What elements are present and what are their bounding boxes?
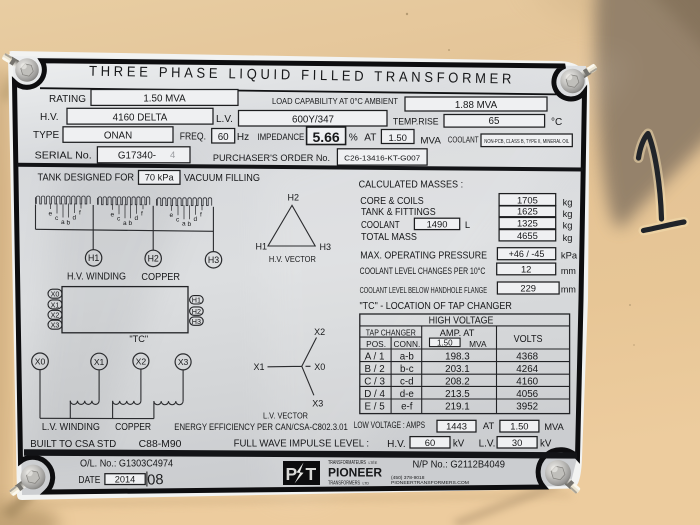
- svg-text:"TC": "TC": [129, 334, 148, 344]
- svg-text:AT: AT: [483, 420, 495, 431]
- svg-text:600Y/347: 600Y/347: [292, 115, 334, 126]
- svg-text:POS.: POS.: [366, 339, 386, 349]
- svg-text:D / 4: D / 4: [364, 389, 385, 400]
- svg-text:TYPE: TYPE: [33, 130, 59, 141]
- svg-text:4: 4: [170, 150, 175, 161]
- svg-text:H3: H3: [320, 242, 332, 252]
- svg-text:X1: X1: [253, 362, 264, 372]
- svg-text:COPPER: COPPER: [115, 422, 151, 433]
- svg-text:ONAN: ONAN: [104, 130, 132, 141]
- svg-text:d: d: [135, 215, 139, 222]
- svg-text:213.5: 213.5: [445, 389, 470, 400]
- svg-text:H2: H2: [148, 254, 159, 264]
- svg-text:DATE: DATE: [78, 475, 100, 486]
- svg-text:O/L. No.: G1303C4974: O/L. No.: G1303C4974: [80, 458, 174, 469]
- svg-text:BUILT TO CSA STD: BUILT TO CSA STD: [30, 439, 116, 450]
- svg-text:1.50: 1.50: [388, 133, 407, 144]
- svg-text:08: 08: [147, 472, 164, 489]
- svg-text:kPa: kPa: [561, 250, 578, 261]
- svg-text:a-b: a-b: [400, 351, 415, 362]
- svg-text:d: d: [73, 214, 77, 221]
- svg-text:H.V. WINDING: H.V. WINDING: [67, 272, 126, 283]
- svg-text:1.50: 1.50: [437, 339, 453, 348]
- svg-text:4056: 4056: [516, 389, 538, 400]
- svg-text:X3: X3: [51, 321, 60, 330]
- svg-text:C26-13416-KT-G007: C26-13416-KT-G007: [344, 153, 420, 162]
- svg-text:229: 229: [520, 282, 536, 293]
- svg-text:b: b: [188, 221, 192, 228]
- svg-text:198.3: 198.3: [445, 351, 470, 362]
- svg-text:a: a: [123, 220, 127, 227]
- svg-text:COOLANT LEVEL BELOW HANDHOLE F: COOLANT LEVEL BELOW HANDHOLE FLANGE: [360, 285, 488, 295]
- svg-text:3952: 3952: [516, 401, 538, 412]
- svg-text:N/P No.: G2112B4049: N/P No.: G2112B4049: [413, 460, 506, 471]
- svg-text:5.66: 5.66: [312, 129, 339, 145]
- svg-text:TEMP.RISE: TEMP.RISE: [393, 116, 439, 127]
- svg-text:a: a: [61, 219, 65, 226]
- svg-text:b: b: [129, 220, 133, 227]
- svg-text:CORE & COILS: CORE & COILS: [360, 196, 424, 207]
- svg-text:X2: X2: [314, 327, 325, 337]
- svg-text:COOLANT: COOLANT: [448, 135, 479, 145]
- svg-text:MVA: MVA: [544, 421, 564, 432]
- svg-text:12: 12: [521, 263, 531, 274]
- svg-text:COOLANT: COOLANT: [361, 220, 400, 231]
- svg-text:f: f: [200, 211, 202, 218]
- svg-text:a: a: [182, 221, 186, 228]
- svg-text:X3: X3: [178, 357, 189, 367]
- svg-text:mm: mm: [561, 266, 576, 276]
- svg-text:X1: X1: [94, 357, 105, 367]
- svg-text:ENERGY EFFICIENCY PER CAN/CSA-: ENERGY EFFICIENCY PER CAN/CSA-C802.3.01: [174, 422, 348, 432]
- svg-text:1.50: 1.50: [510, 420, 528, 431]
- svg-text:b: b: [67, 219, 71, 226]
- svg-text:d-e: d-e: [400, 389, 415, 400]
- svg-text:°C: °C: [551, 117, 562, 128]
- svg-text:TANK DESIGNED FOR: TANK DESIGNED FOR: [38, 172, 135, 183]
- svg-text:kg: kg: [563, 208, 573, 219]
- svg-text:kg: kg: [563, 220, 573, 231]
- svg-text:f: f: [79, 210, 81, 217]
- svg-text:%: %: [349, 133, 358, 144]
- svg-text:kg: kg: [563, 197, 573, 208]
- svg-text:kV: kV: [540, 438, 552, 449]
- svg-text:H2: H2: [288, 192, 300, 202]
- svg-text:P: P: [286, 464, 298, 484]
- svg-text:TOTAL MASS: TOTAL MASS: [361, 232, 417, 243]
- svg-text:PURCHASER'S ORDER No.: PURCHASER'S ORDER No.: [213, 153, 330, 164]
- svg-text:e-f: e-f: [401, 401, 413, 412]
- svg-text:X2: X2: [136, 356, 147, 366]
- svg-text:4160: 4160: [516, 376, 538, 387]
- svg-text:e: e: [111, 211, 115, 218]
- svg-text:1625: 1625: [517, 206, 538, 217]
- svg-text:FULL WAVE IMPULSE LEVEL :: FULL WAVE IMPULSE LEVEL :: [234, 439, 370, 450]
- svg-text:LOW VOLTAGE : AMPS: LOW VOLTAGE : AMPS: [354, 420, 425, 430]
- svg-text:4264: 4264: [516, 364, 538, 375]
- svg-text:(450) 378-9018: (450) 378-9018: [391, 475, 425, 481]
- svg-text:208.2: 208.2: [445, 376, 470, 387]
- svg-text:NON-PCB, CLASS B, TYPE II, MIN: NON-PCB, CLASS B, TYPE II, MINERAL OIL: [484, 139, 569, 145]
- svg-text:60: 60: [218, 132, 229, 143]
- svg-text:H.V.: H.V.: [40, 112, 59, 123]
- svg-text:mm: mm: [561, 285, 576, 295]
- svg-text:L.V. WINDING: L.V. WINDING: [42, 422, 100, 433]
- svg-text:L.V.: L.V.: [479, 438, 496, 449]
- svg-text:X0: X0: [35, 357, 46, 367]
- svg-text:d: d: [194, 216, 198, 223]
- svg-text:e: e: [49, 211, 53, 218]
- svg-text:203.1: 203.1: [445, 364, 470, 375]
- svg-text:LOAD CAPABILITY AT 0°C AMBIENT: LOAD CAPABILITY AT 0°C AMBIENT: [272, 97, 398, 106]
- svg-text:C / 3: C / 3: [364, 376, 385, 387]
- svg-text:X3: X3: [312, 398, 323, 408]
- svg-text:H1: H1: [192, 296, 201, 305]
- svg-text:b-c: b-c: [400, 364, 414, 375]
- svg-text:X2: X2: [51, 311, 60, 320]
- svg-text:MVA: MVA: [469, 339, 487, 349]
- svg-text:TRANSFORMERS: TRANSFORMERS: [328, 480, 360, 486]
- svg-text:1325: 1325: [517, 218, 538, 229]
- svg-text:kV: kV: [453, 438, 465, 449]
- svg-text:C88-M90: C88-M90: [139, 439, 182, 450]
- svg-text:L.V. VECTOR: L.V. VECTOR: [263, 410, 308, 420]
- svg-text:1490: 1490: [427, 219, 448, 230]
- svg-text:L.V.: L.V.: [216, 114, 233, 125]
- svg-text:COOLANT LEVEL CHANGES PER 10°C: COOLANT LEVEL CHANGES PER 10°C: [360, 266, 486, 276]
- svg-text:CONN.: CONN.: [394, 339, 421, 349]
- svg-text:RATING: RATING: [49, 94, 86, 105]
- svg-text:LTD: LTD: [363, 481, 370, 485]
- svg-text:X0: X0: [314, 362, 325, 372]
- svg-text:H1: H1: [255, 242, 267, 252]
- svg-text:1705: 1705: [517, 194, 538, 205]
- svg-text:COPPER: COPPER: [141, 272, 180, 283]
- svg-text:c-d: c-d: [400, 376, 414, 387]
- svg-text:B / 2: B / 2: [365, 364, 385, 375]
- svg-text:1.50 MVA: 1.50 MVA: [143, 94, 186, 105]
- svg-text:E / 5: E / 5: [365, 401, 386, 412]
- svg-text:L: L: [465, 219, 470, 230]
- svg-text:2014: 2014: [115, 474, 135, 484]
- svg-text:SERIAL No.: SERIAL No.: [35, 151, 92, 162]
- svg-text:"TC" - LOCATION OF TAP CHANGER: "TC" - LOCATION OF TAP CHANGER: [360, 301, 512, 312]
- svg-text:219.1: 219.1: [445, 401, 470, 412]
- svg-text:60: 60: [425, 437, 435, 448]
- svg-text:G17340-: G17340-: [118, 151, 156, 162]
- svg-text:f: f: [141, 211, 143, 218]
- svg-text:CALCULATED MASSES :: CALCULATED MASSES :: [359, 179, 464, 190]
- svg-text:IMPEDANCE: IMPEDANCE: [257, 132, 304, 142]
- svg-text:e: e: [170, 212, 174, 219]
- svg-text:4655: 4655: [517, 230, 538, 241]
- svg-text:X1: X1: [51, 300, 60, 309]
- svg-text:HIGH VOLTAGE: HIGH VOLTAGE: [429, 315, 494, 326]
- svg-text:4368: 4368: [516, 351, 538, 362]
- svg-text:H3: H3: [208, 255, 219, 265]
- svg-text:Hz: Hz: [237, 132, 249, 143]
- svg-text:A / 1: A / 1: [365, 351, 385, 362]
- svg-text:VOLTS: VOLTS: [514, 334, 543, 345]
- svg-text:H1: H1: [88, 253, 99, 263]
- svg-text:1443: 1443: [446, 420, 467, 431]
- svg-text:kg: kg: [563, 232, 573, 243]
- svg-text:TANK & FITTINGS: TANK & FITTINGS: [361, 207, 436, 218]
- svg-text:PIONEERTRANSFORMERS.COM: PIONEERTRANSFORMERS.COM: [391, 480, 469, 486]
- svg-text:70 kPa: 70 kPa: [145, 173, 175, 183]
- svg-text:65: 65: [489, 116, 500, 127]
- svg-text:+46 / -45: +46 / -45: [509, 249, 545, 259]
- svg-text:MAX. OPERATING PRESSURE: MAX. OPERATING PRESSURE: [360, 251, 487, 262]
- svg-text:1.88 MVA: 1.88 MVA: [455, 100, 498, 111]
- svg-text:4160 DELTA: 4160 DELTA: [113, 112, 168, 123]
- svg-text:AT: AT: [364, 133, 376, 144]
- svg-text:TAP CHANGER: TAP CHANGER: [366, 327, 416, 337]
- svg-text:T: T: [306, 464, 317, 484]
- svg-text:MVA: MVA: [420, 135, 441, 146]
- svg-text:X0: X0: [51, 290, 60, 299]
- svg-text:30: 30: [512, 437, 522, 448]
- svg-text:H2: H2: [192, 307, 201, 316]
- svg-text:FREQ.: FREQ.: [180, 132, 206, 143]
- svg-text:AMP. AT: AMP. AT: [440, 328, 475, 338]
- svg-text:VACUUM FILLING: VACUUM FILLING: [184, 173, 260, 184]
- svg-text:PIONEER: PIONEER: [328, 465, 382, 479]
- svg-text:H.V. VECTOR: H.V. VECTOR: [269, 254, 316, 264]
- svg-text:H3: H3: [192, 317, 201, 326]
- svg-text:H.V.: H.V.: [387, 439, 406, 450]
